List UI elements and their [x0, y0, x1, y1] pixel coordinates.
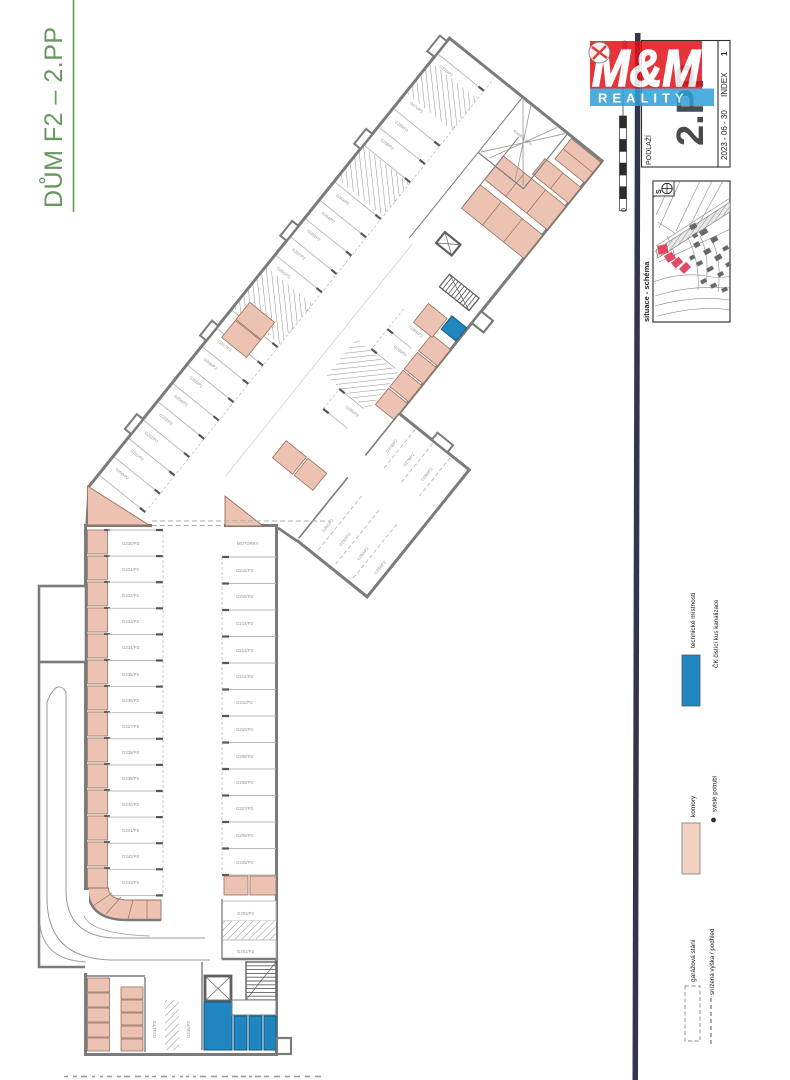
- svg-text:MOTORKY: MOTORKY: [237, 541, 259, 546]
- svg-text:G241/P2: G241/P2: [122, 828, 140, 833]
- svg-text:G210/P2: G210/P2: [236, 727, 254, 732]
- svg-text:garážová stání: garážová stání: [690, 939, 697, 982]
- svg-text:G233/P2: G233/P2: [122, 619, 140, 624]
- svg-text:G201/P2: G201/P2: [237, 949, 255, 954]
- svg-text:komory: komory: [690, 795, 697, 817]
- svg-text:G230/P2: G230/P2: [122, 541, 140, 546]
- svg-text:1: 1: [720, 51, 729, 56]
- svg-text:G202/P2: G202/P2: [237, 911, 255, 916]
- svg-text:G236/P2: G236/P2: [122, 698, 140, 703]
- svg-text:technické místnosti: technické místnosti: [690, 593, 697, 648]
- svg-text:G238/P2: G238/P2: [122, 750, 140, 755]
- svg-text:G244/P2: G244/P2: [152, 1020, 157, 1038]
- svg-text:G212/P2: G212/P2: [236, 674, 254, 679]
- svg-text:INDEX: INDEX: [720, 72, 729, 97]
- svg-text:G243/P2: G243/P2: [122, 880, 140, 885]
- svg-text:snížená výška / podhled: snížená výška / podhled: [709, 928, 716, 995]
- svg-text:G239/P2: G239/P2: [122, 776, 140, 781]
- svg-text:DŮM F2 – 2.PP: DŮM F2 – 2.PP: [37, 26, 68, 208]
- svg-text:G240/P2: G240/P2: [122, 802, 140, 807]
- svg-text:ČK čistící kus kanalizace: ČK čistící kus kanalizace: [713, 599, 720, 668]
- svg-text:2023 - 06 - 30: 2023 - 06 - 30: [720, 110, 729, 160]
- svg-text:G234/P2: G234/P2: [122, 645, 140, 650]
- svg-text:G214/P2: G214/P2: [236, 621, 254, 626]
- svg-text:G232/P2: G232/P2: [122, 593, 140, 598]
- svg-text:G237/P2: G237/P2: [122, 724, 140, 729]
- svg-text:svislé potrubí: svislé potrubí: [712, 775, 719, 812]
- svg-text:G211/P2: G211/P2: [236, 700, 253, 705]
- svg-text:G206/P2: G206/P2: [236, 833, 254, 838]
- svg-text:G205/P2: G205/P2: [236, 860, 254, 865]
- svg-text:G209/P2: G209/P2: [236, 754, 254, 759]
- svg-text:G215/P2: G215/P2: [236, 594, 254, 599]
- svg-text:G207/P2: G207/P2: [236, 806, 254, 811]
- svg-text:G208/P2: G208/P2: [236, 780, 254, 785]
- svg-text:0: 0: [621, 208, 628, 212]
- svg-text:PODLAŽÍ: PODLAŽÍ: [644, 135, 653, 165]
- svg-text:REALITY: REALITY: [598, 91, 689, 106]
- svg-text:G235/P2: G235/P2: [122, 672, 140, 677]
- svg-text:G242/P2: G242/P2: [122, 854, 140, 859]
- svg-text:G245/P2: G245/P2: [186, 1020, 191, 1038]
- svg-text:G216/P2: G216/P2: [236, 568, 254, 573]
- svg-text:situace - schéma: situace - schéma: [642, 261, 651, 322]
- svg-text:G213/P2: G213/P2: [236, 648, 254, 653]
- svg-text:G231/P2: G231/P2: [122, 567, 140, 572]
